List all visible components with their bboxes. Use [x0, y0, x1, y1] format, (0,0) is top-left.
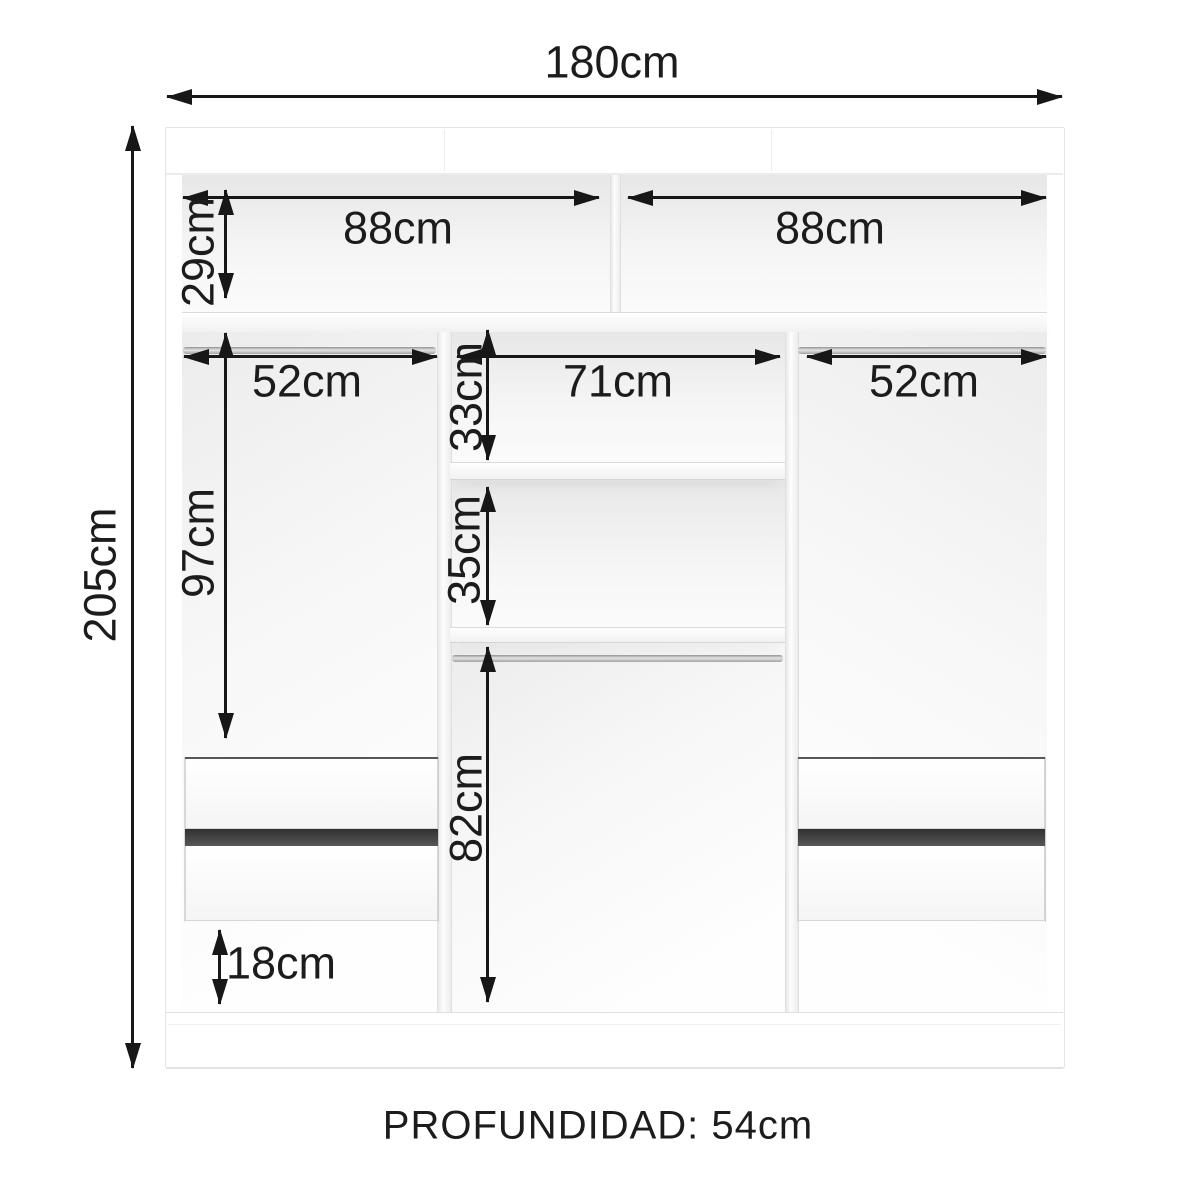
dim-top-right-label: 88cm: [775, 206, 885, 251]
middle-middle-cavity: [450, 478, 785, 627]
long-shelf: [182, 312, 1047, 334]
left-drawer-gap: [185, 829, 438, 846]
cabinet-top-panel: [166, 128, 1063, 175]
dim-left-hang-label: 97cm: [176, 488, 221, 598]
arrowhead: [1037, 89, 1063, 105]
dim-top-left-label: 88cm: [343, 206, 453, 251]
right-drawer-gap: [798, 829, 1045, 846]
wardrobe-dimension-diagram: 180cm 205cm 88cm 88cm 29cm 52cm 71cm 52c…: [0, 0, 1200, 1200]
right-drawer-2: [798, 846, 1045, 921]
dim-center-width-label: 71cm: [563, 359, 673, 404]
dim-center-lower-label: 82cm: [444, 753, 489, 863]
arrowhead: [480, 977, 496, 1003]
arrowhead: [125, 1043, 141, 1069]
dim-bottom-gap-label: 18cm: [226, 941, 336, 986]
dim-top-right-arrow: [628, 196, 1046, 199]
arrowhead: [755, 349, 781, 365]
dim-total-height-arrow: [131, 126, 134, 1068]
arrowhead: [627, 190, 653, 206]
arrowhead: [1021, 190, 1047, 206]
left-drawer-1: [185, 759, 438, 829]
arrowhead: [480, 646, 496, 672]
top-compartment-divider: [610, 175, 621, 312]
top-panel-joint: [444, 130, 445, 171]
dim-left-hang-arrow: [224, 333, 227, 738]
dim-bottom-gap-arrow: [218, 930, 221, 1004]
dim-left-rod-label: 52cm: [252, 359, 362, 404]
arrowhead: [183, 349, 209, 365]
dim-total-width-label: 180cm: [544, 40, 679, 85]
right-drawer-unit: [797, 757, 1046, 922]
arrowhead: [218, 332, 234, 358]
dim-top-height-label: 29cm: [176, 197, 221, 307]
arrowhead: [125, 125, 141, 151]
arrowhead: [1021, 349, 1047, 365]
dim-upper-gap-label: 33cm: [444, 342, 489, 452]
dim-top-left-arrow: [183, 196, 599, 199]
middle-shelf-lower: [450, 627, 785, 643]
depth-caption: PROFUNDIDAD: 54cm: [383, 1104, 813, 1149]
dim-total-height-label: 205cm: [78, 507, 123, 642]
middle-lower-cavity: [450, 641, 785, 1012]
left-drawer-unit: [184, 757, 439, 922]
middle-shelf-upper: [450, 462, 785, 480]
arrowhead: [166, 89, 192, 105]
arrowhead: [412, 349, 438, 365]
arrowhead: [218, 713, 234, 739]
plinth-edge-line: [168, 1024, 1061, 1025]
cabinet-plinth: [166, 1012, 1063, 1069]
right-hanging-rod: [798, 347, 1046, 354]
dim-total-width-arrow: [167, 95, 1062, 98]
dim-top-height-arrow: [224, 190, 227, 298]
left-drawer-2: [185, 846, 438, 921]
right-drawer-1: [798, 759, 1045, 829]
middle-hanging-rod: [452, 655, 783, 662]
arrowhead: [806, 349, 832, 365]
dim-middle-gap-label: 35cm: [442, 495, 487, 605]
top-panel-joint: [771, 130, 772, 171]
dim-right-rod-label: 52cm: [869, 359, 979, 404]
arrowhead: [574, 190, 600, 206]
